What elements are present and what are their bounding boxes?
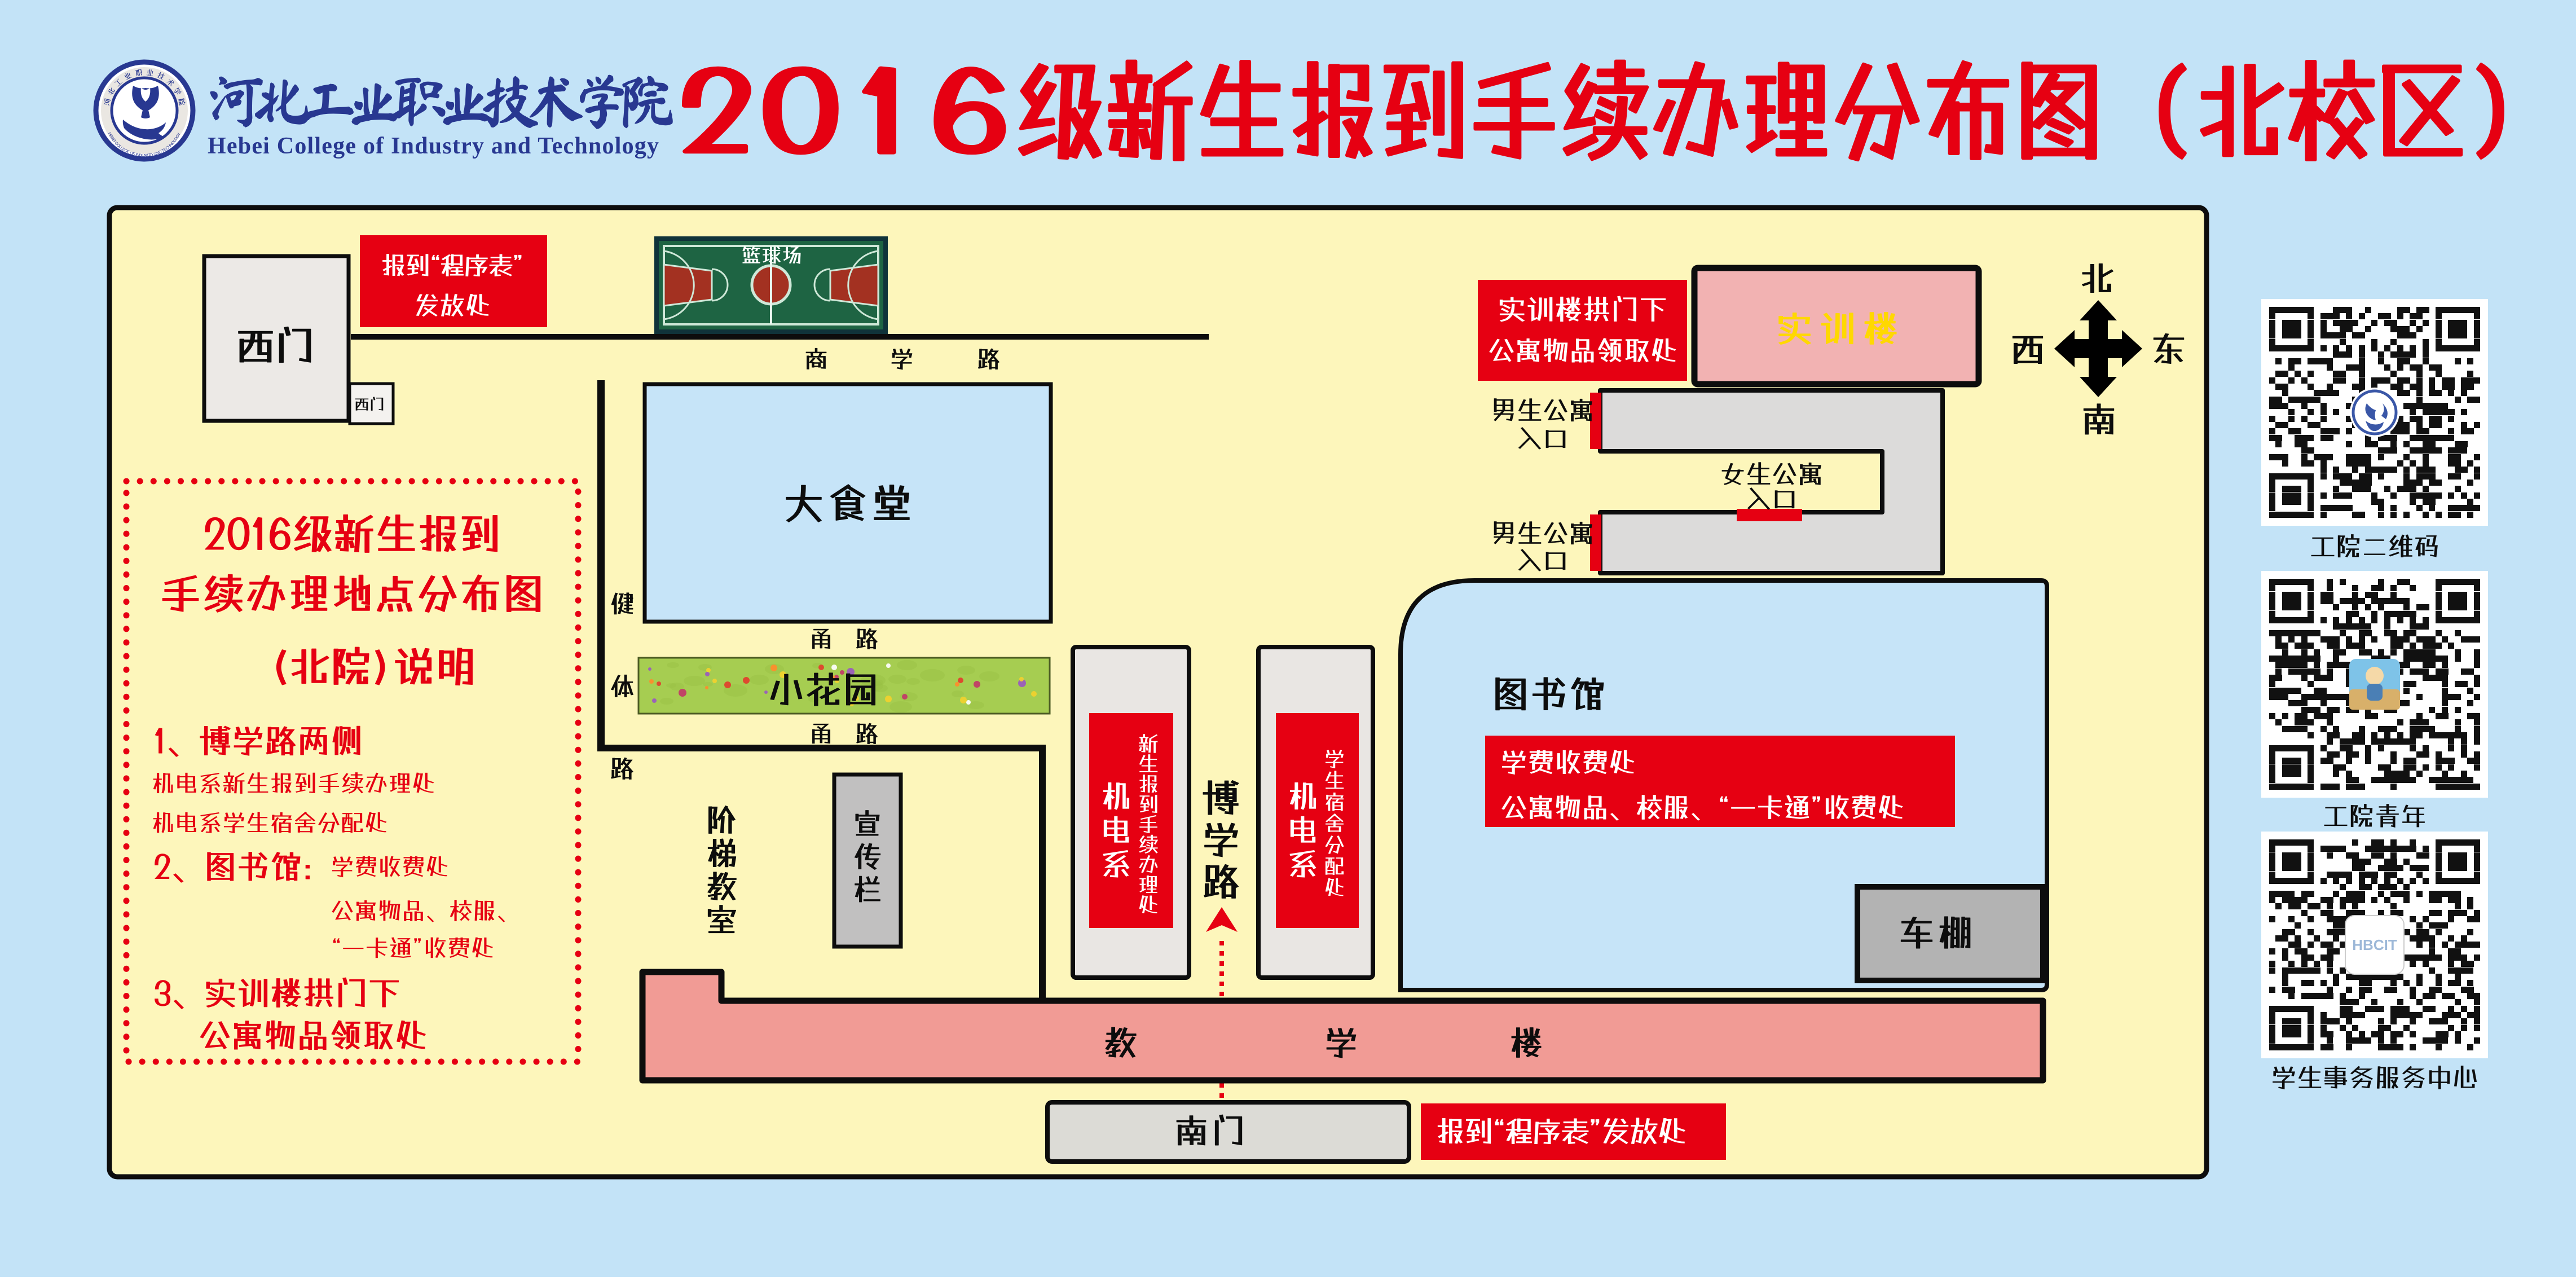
- svg-text:Hebei College of Industry and: Hebei College of Industry and Technology: [208, 133, 659, 159]
- svg-text:HBCIT: HBCIT: [2352, 936, 2397, 953]
